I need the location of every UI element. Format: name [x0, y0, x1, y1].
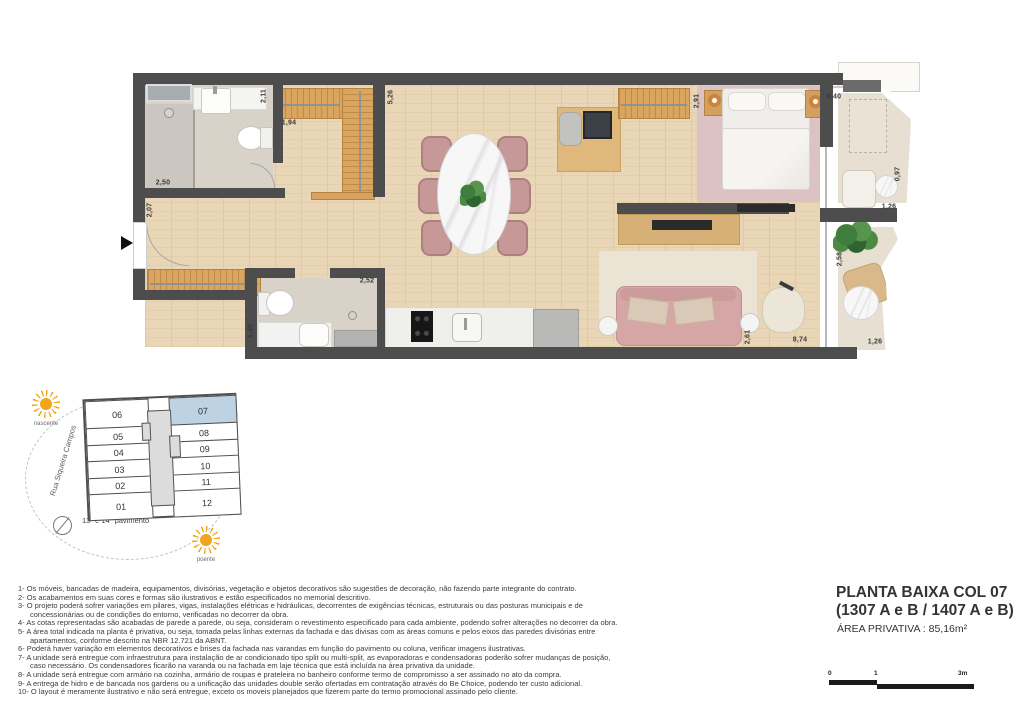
wall	[373, 85, 385, 197]
faucet-icon	[213, 86, 217, 94]
scale-segment	[829, 680, 877, 685]
balcony-bottom	[833, 222, 905, 355]
dim-label: 2,07	[147, 203, 154, 217]
bedroom-balcony-door	[820, 147, 833, 208]
compass-icon	[53, 516, 72, 535]
wall	[377, 278, 385, 357]
closet-shelf	[311, 192, 375, 200]
pillow	[728, 92, 766, 111]
toilet-tank	[260, 127, 273, 149]
entry-arrow-icon	[121, 236, 133, 250]
monitor	[583, 111, 612, 139]
balcony-ledge-bar	[843, 80, 881, 92]
technical-slab-ac	[849, 99, 887, 153]
unit-cell: 01	[89, 491, 154, 521]
shower-glass-divider	[193, 104, 195, 188]
sofa-cushion	[673, 297, 716, 326]
dim-label: 2,52	[360, 278, 374, 285]
dim-label: 2,61	[745, 330, 752, 344]
dim-label: 0,97	[895, 167, 902, 181]
wall	[245, 268, 257, 357]
dim-label: 2,50	[156, 180, 170, 187]
wall	[257, 268, 295, 278]
bedroom-tv	[737, 204, 795, 212]
bathroom-window	[146, 84, 192, 102]
cooktop	[411, 311, 433, 342]
building-plan: 06 05 04 03 02 01 07 08 09 10 11 12	[82, 393, 241, 522]
floor-plan-sheet: 2,11 1,94 5,26 2,50 2,07 2,52 1,45 2,91 …	[0, 0, 1024, 724]
dim-label: 1,45	[248, 324, 255, 338]
dim-label: 2,91	[694, 94, 701, 108]
side-table	[598, 316, 618, 336]
building-core	[147, 410, 175, 507]
shower-head-icon	[164, 108, 174, 118]
lavabo-toilet	[266, 290, 294, 316]
lavabo-sink	[299, 323, 329, 347]
note-line: 10- O layout é meramente ilustrativo e n…	[18, 688, 622, 697]
bedroom-wardrobe	[618, 88, 690, 119]
duvet	[722, 128, 810, 190]
kitchen-sink	[452, 313, 482, 342]
unit-cell: 12	[172, 488, 241, 518]
lounge-chair	[842, 170, 876, 208]
sun-west-icon	[192, 526, 220, 554]
note-line: 3- O projeto poderá sofrer variações em …	[18, 602, 622, 619]
wall	[330, 268, 385, 278]
drain-icon	[348, 311, 357, 320]
key-plan: nascente poente Rua Siqueira Campos 06 0…	[20, 388, 250, 583]
sun-east-icon	[32, 390, 60, 418]
private-area: ÁREA PRIVATIVA : 85,16m²	[837, 623, 967, 635]
closet-wardrobe-side	[342, 88, 375, 198]
floor-plan: 2,11 1,94 5,26 2,50 2,07 2,52 1,45 2,91 …	[0, 0, 1024, 400]
wall	[133, 73, 145, 222]
balcony-top	[833, 88, 919, 208]
building-core-tab	[141, 422, 151, 440]
plan-title: PLANTA BAIXA COL 07	[836, 584, 1007, 602]
scale-tick: 3m	[958, 670, 967, 677]
dim-label: 9,40	[827, 94, 841, 101]
wall	[133, 73, 843, 85]
balcony-bistro-table	[843, 286, 879, 320]
note-line: 7- A unidade será entregue com infraestr…	[18, 654, 622, 671]
scale-segment	[877, 684, 974, 689]
dim-label: 5,26	[388, 90, 395, 104]
office-chair	[559, 112, 582, 146]
dim-label: 2,58	[837, 252, 844, 266]
living-balcony-glass	[820, 222, 833, 347]
table-plant	[460, 180, 486, 210]
sun-west-label: poente	[176, 557, 236, 563]
note-line: 5- A área total indicada na planta é pri…	[18, 628, 622, 645]
armchair	[762, 287, 805, 333]
scale-tick: 0	[828, 670, 832, 677]
wall	[133, 290, 257, 300]
pillow	[768, 92, 806, 111]
dim-label: 1,26	[868, 339, 882, 346]
scale-bar: 0 1 3m	[828, 670, 978, 694]
dim-label: 1,26	[882, 204, 896, 211]
scale-tick: 1	[874, 670, 878, 677]
legal-notes: 1- Os móveis, bancadas de madeira, equip…	[18, 585, 622, 697]
refrigerator	[533, 309, 579, 348]
wall	[245, 347, 857, 359]
balcony-plant	[833, 222, 878, 254]
dim-label: 8,74	[793, 337, 807, 344]
plan-subtitle: (1307 A e B / 1407 A e B)	[836, 602, 1014, 620]
entry-door	[133, 222, 147, 269]
nightstand-lamp-icon	[708, 94, 721, 107]
living-tv	[652, 220, 712, 230]
wall	[133, 188, 285, 198]
dim-label: 1,94	[282, 120, 296, 127]
kitchen-faucet-icon	[464, 318, 467, 330]
sun-east-label: nascente	[16, 421, 76, 427]
building-core-tab	[169, 435, 181, 457]
closet-wardrobe-top	[278, 88, 343, 119]
dim-label: 2,11	[261, 89, 268, 103]
lavabo-shower-mat	[334, 330, 379, 347]
